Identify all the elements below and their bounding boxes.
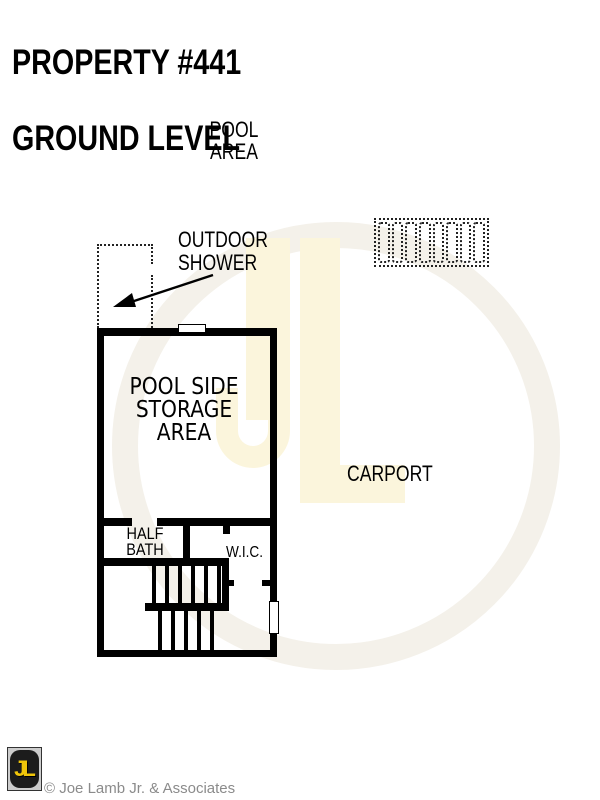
wall-left <box>97 328 104 657</box>
stair-tread <box>184 611 188 650</box>
watermark-letter-l <box>300 238 340 503</box>
deck-step <box>378 222 390 263</box>
stair-tread <box>158 611 162 650</box>
stair-tread <box>191 566 195 603</box>
stair-tread <box>178 566 182 603</box>
wall-bottom <box>97 650 277 657</box>
window-right <box>269 601 279 634</box>
shower-enclosure-right-upper <box>151 244 153 264</box>
wic-door-jamb <box>223 526 230 534</box>
deck-step <box>433 222 445 263</box>
deck-step <box>446 222 458 263</box>
shower-enclosure-top <box>97 244 153 246</box>
wic-label: W.I.C. <box>226 544 263 562</box>
copyright-text: © Joe Lamb Jr. & Associates <box>44 780 235 797</box>
stair-tread <box>171 611 175 650</box>
deck-steps <box>374 218 489 267</box>
half-bath-bottom-wall <box>97 558 229 566</box>
pool-area-label: POOL AREA <box>174 119 294 163</box>
stair-tread <box>197 611 201 650</box>
deck-step <box>392 222 404 263</box>
company-logo-text: JL <box>14 756 35 782</box>
stair-landing-divider <box>145 603 229 611</box>
window-top <box>178 324 206 333</box>
deck-step <box>473 222 485 263</box>
stair-tread <box>210 611 214 650</box>
deck-step <box>419 222 431 263</box>
stair-tread <box>204 566 208 603</box>
deck-step <box>405 222 417 263</box>
half-bath-label: HALF BATH <box>111 526 179 558</box>
page-title: PROPERTY #441 GROUND LEVEL <box>12 6 241 196</box>
stair-tread <box>217 566 221 603</box>
carport-label: CARPORT <box>347 461 433 487</box>
page-title-line1: PROPERTY #441 <box>12 44 241 82</box>
company-logo-pill: JL <box>10 750 39 788</box>
shower-enclosure-left <box>97 244 99 328</box>
shower-arrow <box>100 265 225 320</box>
company-logo: JL <box>7 747 42 791</box>
floor-plan-page: PROPERTY #441 GROUND LEVEL POOL AREA OUT… <box>0 0 600 800</box>
deck-step <box>460 222 472 263</box>
pool-side-storage-label: POOL SIDE STORAGE AREA <box>114 376 255 445</box>
stair-tread <box>165 566 169 603</box>
wall-mid-right-segment <box>157 518 277 526</box>
stair-tread <box>152 566 156 603</box>
wic-bottom-wall-right <box>262 580 272 586</box>
